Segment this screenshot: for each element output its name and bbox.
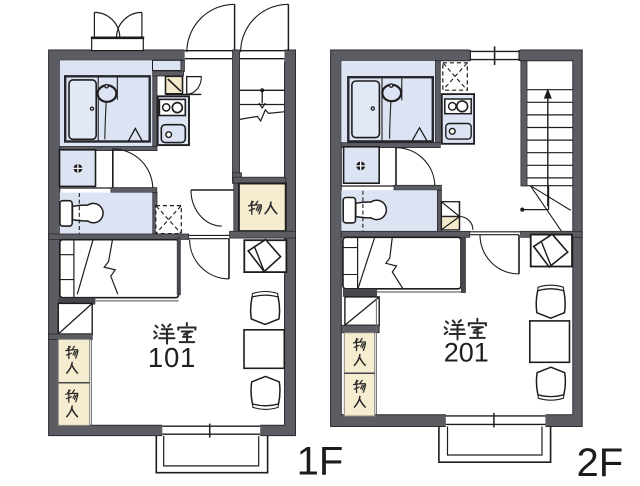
svg-text:2F: 2F	[577, 441, 624, 485]
svg-text:1F: 1F	[297, 440, 344, 484]
svg-text:101: 101	[148, 342, 196, 373]
svg-text:201: 201	[444, 338, 489, 368]
